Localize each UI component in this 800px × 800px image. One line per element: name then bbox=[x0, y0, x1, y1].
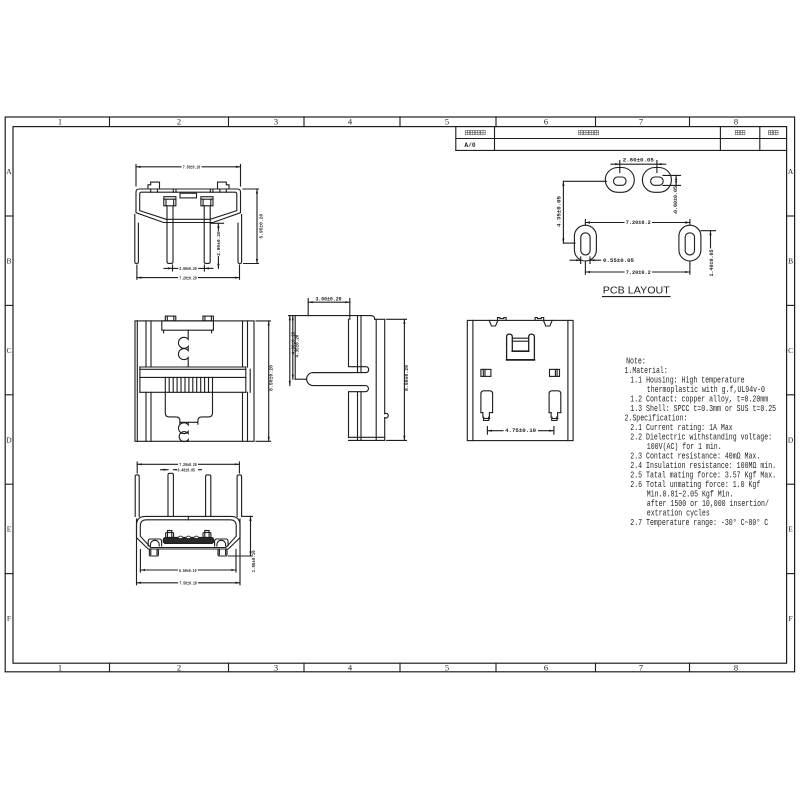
svg-text:E: E bbox=[788, 525, 793, 534]
svg-text:E: E bbox=[7, 525, 12, 534]
svg-text:5: 5 bbox=[445, 117, 449, 127]
svg-text:7: 7 bbox=[639, 117, 643, 127]
svg-text:1: 1 bbox=[58, 117, 62, 127]
svg-text:4.35±0.20: 4.35±0.20 bbox=[295, 334, 300, 357]
svg-text:F: F bbox=[7, 614, 11, 623]
svg-text:3: 3 bbox=[274, 662, 278, 672]
svg-text:5.95±0.20: 5.95±0.20 bbox=[258, 214, 264, 239]
svg-text:1: 1 bbox=[58, 662, 62, 672]
svg-text:7.20±0.2: 7.20±0.2 bbox=[626, 269, 652, 276]
svg-text:2: 2 bbox=[177, 117, 181, 127]
svg-text:A: A bbox=[6, 167, 12, 176]
svg-text:4.75±0.10: 4.75±0.10 bbox=[505, 428, 536, 434]
svg-text:D: D bbox=[788, 435, 794, 444]
svg-text:2.7 Temperature range: -30° C~: 2.7 Temperature range: -30° C~80° C bbox=[630, 517, 768, 528]
svg-text:3: 3 bbox=[274, 117, 278, 127]
svg-text:F: F bbox=[789, 614, 793, 623]
svg-text:2: 2 bbox=[177, 662, 181, 672]
svg-text:7.20±0.20: 7.20±0.20 bbox=[179, 275, 197, 281]
svg-text:6: 6 bbox=[544, 662, 548, 672]
svg-text:7: 7 bbox=[639, 662, 643, 672]
svg-text:0.40±0.05: 0.40±0.05 bbox=[178, 467, 196, 473]
svg-text:8.50±0.20: 8.50±0.20 bbox=[404, 365, 410, 391]
svg-text:3.00±0.20: 3.00±0.20 bbox=[316, 297, 342, 303]
svg-text:B: B bbox=[788, 257, 793, 266]
svg-text:0.55±0.05: 0.55±0.05 bbox=[603, 257, 635, 264]
svg-text:0.60±0.05: 0.60±0.05 bbox=[672, 185, 679, 213]
svg-text:8: 8 bbox=[734, 662, 738, 672]
svg-text:D: D bbox=[6, 435, 12, 444]
svg-text:A/0: A/0 bbox=[464, 142, 475, 149]
svg-text:8.50±0.20: 8.50±0.20 bbox=[269, 365, 275, 391]
svg-text:8: 8 bbox=[734, 117, 738, 127]
svg-text:4: 4 bbox=[348, 662, 353, 672]
svg-text:7.50±0.10: 7.50±0.10 bbox=[183, 165, 201, 171]
svg-text:C: C bbox=[788, 346, 793, 355]
svg-text:1.85±0.10: 1.85±0.10 bbox=[251, 550, 257, 572]
svg-text:4.35±0.05: 4.35±0.05 bbox=[555, 195, 562, 227]
svg-text:A: A bbox=[788, 167, 794, 176]
svg-text:2.60±0.20: 2.60±0.20 bbox=[179, 266, 197, 272]
svg-text:C: C bbox=[6, 346, 11, 355]
svg-text:2.60±0.05: 2.60±0.05 bbox=[623, 157, 655, 164]
svg-text:5: 5 bbox=[445, 662, 449, 672]
svg-text:PCB LAYOUT: PCB LAYOUT bbox=[603, 285, 671, 297]
svg-text:7.50±0.10: 7.50±0.10 bbox=[179, 581, 197, 587]
svg-text:1.40±0.05: 1.40±0.05 bbox=[708, 249, 715, 277]
svg-text:6.50±0.10: 6.50±0.10 bbox=[179, 568, 197, 574]
svg-text:B: B bbox=[6, 257, 11, 266]
svg-text:7.20±0.2: 7.20±0.2 bbox=[626, 219, 652, 226]
svg-text:2.90±0.20: 2.90±0.20 bbox=[216, 231, 222, 256]
svg-text:4: 4 bbox=[348, 117, 353, 127]
svg-text:6: 6 bbox=[544, 117, 548, 127]
